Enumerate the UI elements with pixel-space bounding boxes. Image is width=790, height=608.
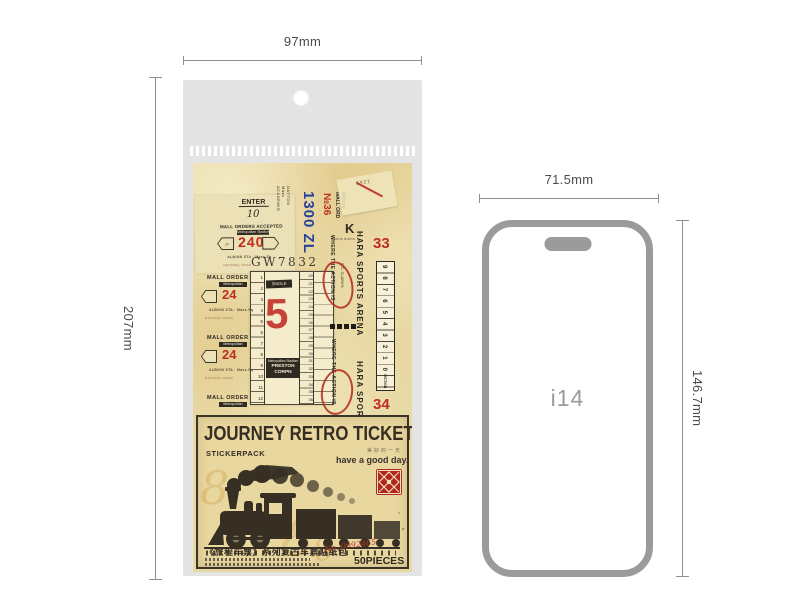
hara-sports-arena: HARA SPORTS ARENA: [355, 231, 364, 355]
number-33: 33: [373, 235, 390, 252]
mall-order-ticket: MALL ORDER Metropolitan 24 ALBION STA · …: [195, 275, 253, 329]
fine-print-line: [205, 558, 310, 561]
ruler-label: SECTION: [383, 374, 387, 388]
fare-24: 24: [222, 287, 236, 302]
pack-width-dimension-line: [183, 60, 422, 61]
pack-height-label: 207mm: [121, 248, 136, 408]
single-box: SINGLE: [266, 280, 292, 289]
fare-240: 240: [238, 234, 265, 250]
fare-arrow-left-icon: 10: [217, 237, 234, 250]
hang-hole: [293, 90, 309, 106]
road-caption: NATIONAL ROAD: [205, 316, 233, 320]
pack-width-tick-left: [183, 56, 184, 65]
phone-model-label: i14: [489, 385, 646, 412]
right-number-scale: 20 21 22 23 24 25 26 27 28 29 30 31 32 3…: [299, 272, 314, 404]
mall-order-header: MALL ORDER: [207, 395, 249, 401]
number-34: 34: [373, 396, 390, 413]
pack-width-tick-right: [421, 56, 422, 65]
phone-width-dimension-line: [479, 198, 659, 199]
phone-width-tick-right: [658, 194, 659, 203]
academig-column: ACADEMIG Mass DAYTON: [276, 186, 291, 242]
mall-order-ticket: MALL ORDER Metropolitan 24 ALBION STA · …: [195, 335, 253, 391]
pack-height-dimension-line: [155, 77, 156, 580]
no36-stamp: №36: [321, 193, 332, 239]
station-caption: ALBION STA · Mass Sq: [209, 368, 253, 372]
pack-height-tick-bottom: [149, 579, 162, 580]
tape-piece: 1263: [336, 170, 397, 215]
clark-text: D.C. CLARK'S: [340, 263, 344, 307]
phone-outline: i14: [482, 220, 653, 577]
sticker-pack-bag: ENTER 10 MALL ORDERS ACCEPTED Metropolit…: [183, 80, 422, 576]
fare-arrow-icon: [201, 290, 217, 303]
phone-width-tick-left: [479, 194, 480, 203]
phone-height-tick-top: [676, 220, 689, 221]
pack-height-tick-top: [149, 77, 162, 78]
road-caption: NATIONAL ROAD: [223, 263, 251, 267]
fine-print-line: [205, 563, 320, 566]
product-label: 8 8 8 JOURNEY RETRO TICKET STICKERPACK 美…: [196, 415, 409, 569]
phone-height-tick-bottom: [676, 576, 689, 577]
ruler-digits: 9 8 7 6 5 4 3 2 1 0: [381, 265, 387, 374]
mall-order-header: MALL ORDER: [207, 335, 249, 341]
arrow-number: 10: [225, 242, 228, 246]
black-blocks: [330, 324, 356, 329]
enter-text: ENTER: [239, 199, 269, 207]
left-number-scale: 1 2 3 4 5 6 7 8 9 10 11 12: [251, 272, 265, 404]
gw-number: GW7832: [251, 255, 318, 269]
size-comparison-diagram: 97mm 207mm ENTER 10 MALL ORDERS ACCEPTED…: [0, 0, 790, 608]
price-1300zl: 1300 ZL: [300, 191, 317, 253]
tear-serration: [187, 146, 418, 156]
big-red-five: 5: [265, 290, 289, 338]
ticket-collage-sheet: ENTER 10 MALL ORDERS ACCEPTED Metropolit…: [193, 163, 412, 572]
handwritten-number: 10: [247, 209, 260, 220]
phone-height-dimension-line: [682, 220, 683, 577]
metropolitan-bar: Metropolitan: [219, 402, 247, 407]
mall-order-header: MALL ORDER: [207, 275, 249, 281]
hara-sports: HARA SPORTS: [355, 361, 364, 413]
letter-k: K: [345, 221, 354, 236]
stamp-1263: 1263: [355, 178, 371, 186]
fare-arrow-icon: [201, 350, 217, 363]
tagline-chinese: 美好的一天: [336, 447, 402, 454]
mall-orders-accepted: MALL ORDERS ACCEPTED: [220, 224, 282, 230]
piece-count: 50PIECES: [354, 555, 404, 567]
road-caption: NATIONAL ROAD: [205, 376, 233, 380]
fare-24: 24: [222, 347, 236, 362]
mall-order-ticket-partial: MALL ORDER Metropolitan: [195, 395, 253, 413]
product-title: JOURNEY RETRO TICKET: [204, 423, 406, 446]
box-preston-corpn: PRESTON CORPN: [266, 364, 300, 376]
phone-height-label: 146.7mm: [690, 318, 705, 478]
dynamic-island: [544, 237, 591, 251]
pack-width-label: 97mm: [183, 34, 422, 49]
station-caption: ALBION STA · Mass Sq: [209, 308, 253, 312]
section-ruler: 9 8 7 6 5 4 3 2 1 0 SECTION: [376, 261, 395, 391]
phone-width-label: 71.5mm: [479, 172, 659, 187]
product-subtitle: STICKERPACK: [206, 449, 265, 458]
